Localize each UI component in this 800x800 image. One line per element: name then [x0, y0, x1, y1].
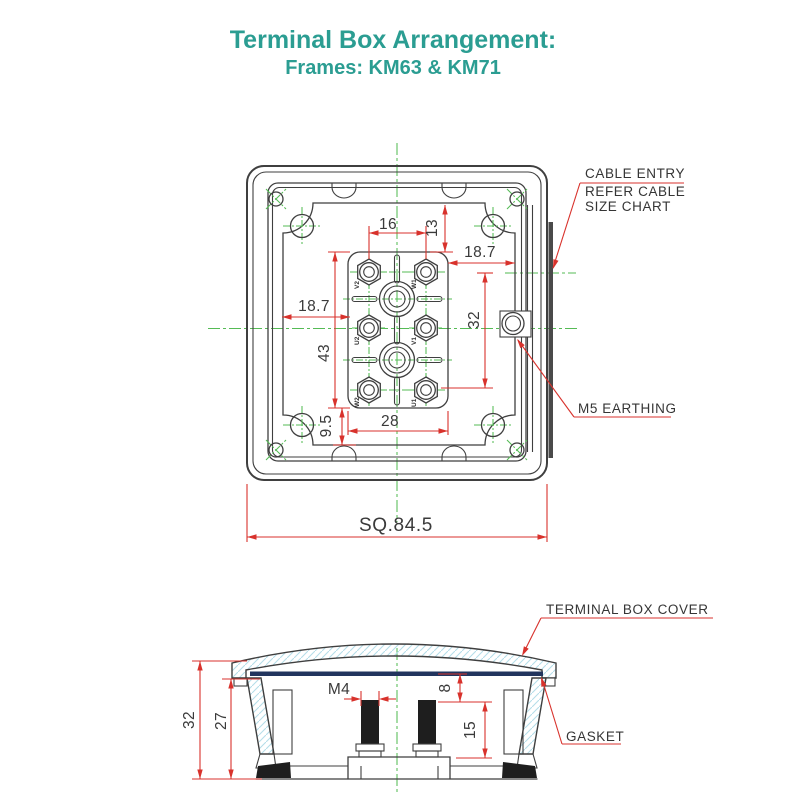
side-view-cover	[232, 644, 556, 686]
top-view-callouts: CABLE ENTRY REFER CABLE SIZE CHART M5 EA…	[515, 166, 686, 417]
dim-28: 28	[381, 413, 399, 430]
side-view: 32 27 M4 8 15	[181, 602, 713, 792]
side-view-dimensions: 32 27 M4 8 15	[181, 661, 492, 779]
cable-entry-plate	[549, 222, 554, 458]
dim-16: 16	[379, 216, 397, 233]
dim-side-27: 27	[213, 712, 230, 730]
cable-entry-label-line2: REFER CABLE	[585, 184, 685, 199]
page-title: Terminal Box Arrangement:	[0, 27, 786, 55]
gasket-label: GASKET	[566, 729, 624, 744]
dim-32: 32	[466, 311, 483, 329]
page-subtitle: Frames: KM63 & KM71	[0, 55, 786, 81]
terminal-label-w2: W2	[354, 397, 361, 407]
dim-overall-square: SQ.84.5	[359, 515, 433, 536]
seal-right	[502, 762, 537, 778]
technical-drawing: V2 W1 U2 V1 W2 U1 16 13	[0, 0, 800, 800]
dim-18-7-right: 18.7	[464, 244, 496, 261]
terminal-label-u2: U2	[354, 336, 361, 345]
gasket-strip	[250, 672, 543, 677]
top-view: V2 W1 U2 V1 W2 U1 16 13	[208, 143, 685, 542]
earthing-boss	[500, 311, 531, 337]
cable-entry-label-line3: SIZE CHART	[585, 199, 671, 214]
seal-left	[256, 762, 291, 778]
dim-15: 15	[462, 721, 479, 739]
dim-13: 13	[424, 219, 441, 237]
terminal-block: V2 W1 U2 V1 W2 U1	[348, 252, 448, 408]
terminal-label-u1: U1	[411, 398, 418, 407]
title-block: Terminal Box Arrangement: Frames: KM63 &…	[0, 27, 786, 81]
terminal-label-w1: W1	[411, 279, 418, 289]
cable-entry-label-line1: CABLE ENTRY	[585, 166, 685, 181]
dim-43: 43	[316, 344, 333, 362]
dim-9-5: 9.5	[318, 415, 335, 438]
terminal-label-v2: V2	[354, 281, 361, 289]
dim-m4: M4	[328, 681, 350, 698]
terminal-studs	[356, 700, 441, 757]
dim-8: 8	[437, 683, 454, 692]
cover-label: TERMINAL BOX COVER	[546, 602, 709, 617]
terminal-label-v1: V1	[411, 337, 418, 345]
dim-side-32: 32	[181, 711, 198, 729]
earthing-label: M5 EARTHING	[578, 401, 677, 416]
dim-18-7-left: 18.7	[298, 298, 330, 315]
